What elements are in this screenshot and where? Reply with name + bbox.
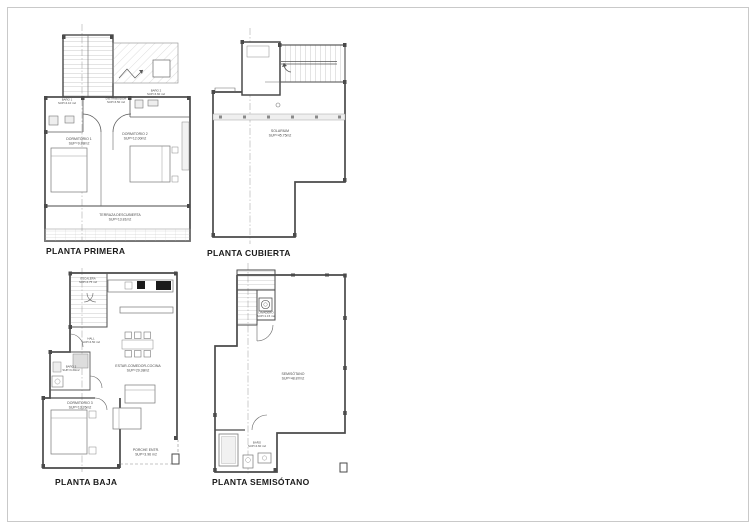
room-label-bano-3: BAÑO 3SUP=3.30m2 (62, 365, 79, 372)
plan-planta-cubierta: SOLARIUMSUP=45.75m2 PLANTA CUBIERTA (205, 26, 390, 266)
planta-cubierta-drawing (205, 26, 390, 256)
plan-title-baja: PLANTA BAJA (55, 477, 117, 487)
planta-semisotano-drawing (205, 263, 390, 475)
room-label-escalera: ESCALERASUP=4.75 m2 (79, 277, 97, 284)
room-label-porche: PORCHE ENTR.SUP=3.96 m2 (133, 449, 159, 458)
room-label-estar-comedor-cocina: ESTAR-COMEDOR-COCINASUP=29.38m2 (115, 365, 160, 374)
plan-title-primera: PLANTA PRIMERA (46, 246, 125, 256)
room-label-dormitorio-1: DORMITORIO 1SUP=9.88m2 (66, 138, 91, 147)
room-label-distribuidor: DISTRIBUIDORSUP=3.50 m2 (106, 97, 127, 104)
plan-planta-baja: ESCALERASUP=4.75 m2 HALLSUP=4.50 m2 BAÑO… (35, 268, 207, 500)
room-label-hall: HALLSUP=4.50 m2 (82, 337, 100, 344)
planta-primera-drawing (35, 10, 205, 245)
room-label-dormitorio-3: DORMITORIO 3SUP=13.26m2 (67, 402, 92, 411)
plan-planta-semisotano: LAVADEROSUP=1.15 m2 SEMISÓTANOSUP=48.87m… (205, 263, 390, 498)
room-label-bano-2: BAÑO 2SUP=3.60 m2 (147, 89, 165, 96)
room-label-terraza: TERRAZA DESCUBIERTASUP=13.81m2 (99, 214, 140, 223)
drawing-sheet: BAÑO 1SUP=4.10 m2 DISTRIBUIDORSUP=3.50 m… (0, 0, 756, 528)
plan-title-semisotano: PLANTA SEMISÓTANO (212, 477, 310, 487)
room-label-semisotano: SEMISÓTANOSUP=48.87m2 (282, 373, 305, 382)
room-label-bano-semisotano: BAÑOSUP=4.60 m2 (248, 441, 266, 448)
room-label-solarium: SOLARIUMSUP=45.75m2 (269, 130, 292, 139)
plan-planta-primera: BAÑO 1SUP=4.10 m2 DISTRIBUIDORSUP=3.50 m… (35, 10, 205, 260)
room-label-bano-1: BAÑO 1SUP=4.10 m2 (58, 98, 76, 105)
room-label-lavadero: LAVADEROSUP=1.15 m2 (257, 311, 275, 318)
plan-title-cubierta: PLANTA CUBIERTA (207, 248, 291, 258)
room-label-dormitorio-2: DORMITORIO 2SUP=12.00m2 (122, 133, 147, 142)
